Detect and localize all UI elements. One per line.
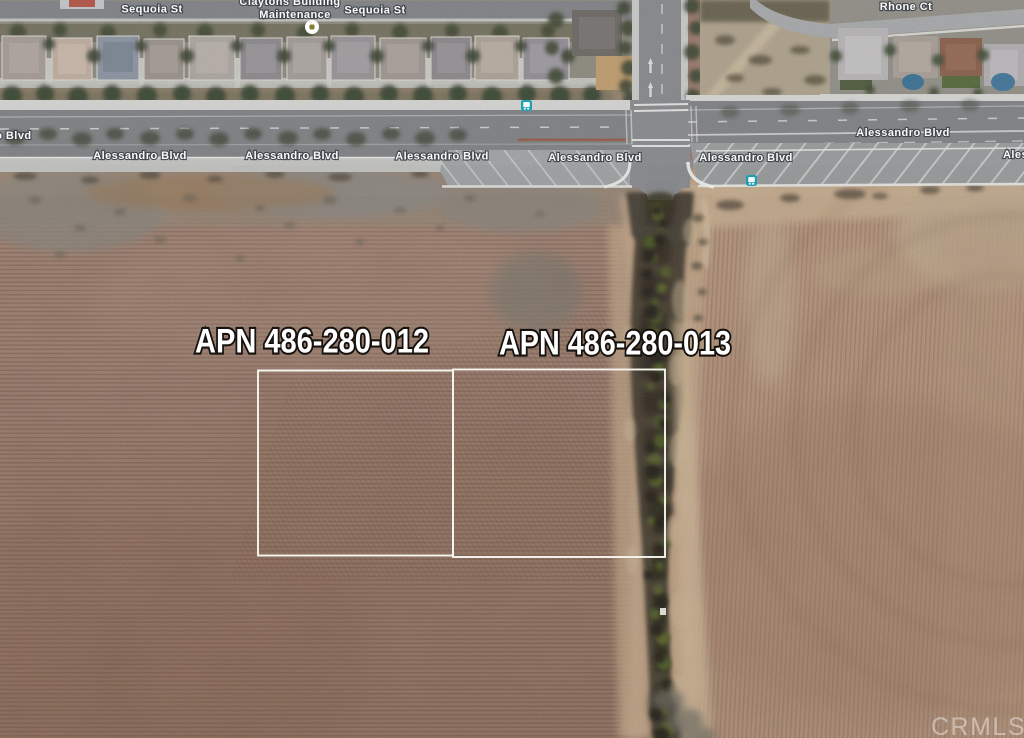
svg-text:Maintenance: Maintenance xyxy=(259,9,331,21)
svg-text:Rhone Ct: Rhone Ct xyxy=(880,1,932,13)
svg-text:APN 486-280-013: APN 486-280-013 xyxy=(499,325,731,363)
svg-text:Alessandro Blvd: Alessandro Blvd xyxy=(395,151,489,163)
svg-text:Alessandro Blvd: Alessandro Blvd xyxy=(93,150,187,162)
svg-text:Alessandro Blvd: Alessandro Blvd xyxy=(699,152,793,164)
svg-text:Sequoia St: Sequoia St xyxy=(344,5,405,17)
svg-text:Alessandro Blvd: Alessandro Blvd xyxy=(856,127,950,139)
svg-text:Alessandro Blvd: Alessandro Blvd xyxy=(1003,149,1024,161)
svg-text:CRMLS: CRMLS xyxy=(931,713,1024,738)
svg-text:Alessandro Blvd: Alessandro Blvd xyxy=(548,152,642,164)
svg-text:Alessandro Blvd: Alessandro Blvd xyxy=(0,130,32,142)
svg-text:Sequoia St: Sequoia St xyxy=(121,4,182,16)
svg-text:Alessandro Blvd: Alessandro Blvd xyxy=(245,150,339,162)
svg-text:Claytons Building: Claytons Building xyxy=(239,0,340,8)
svg-text:APN 486-280-012: APN 486-280-012 xyxy=(195,323,429,361)
